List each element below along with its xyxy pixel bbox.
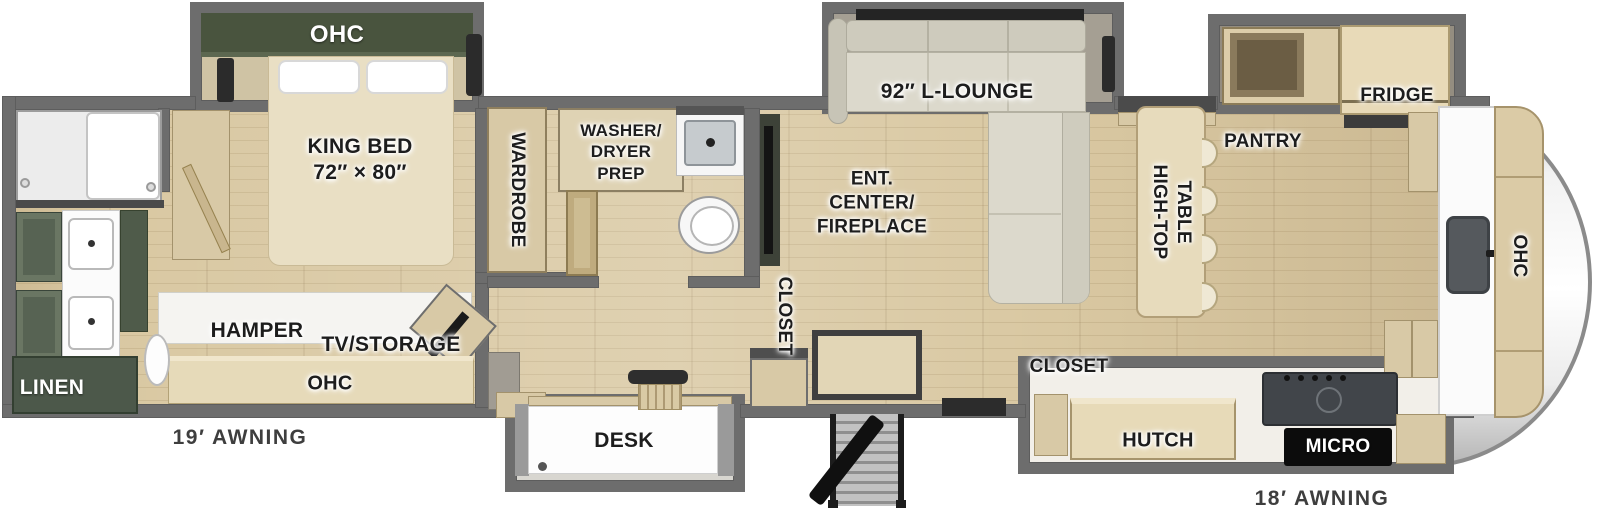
label-bedroom-ohc: OHC — [310, 20, 364, 50]
floorplan: OHC KING BED 72″ × 80″ WARDROBE WASHER/ … — [0, 0, 1600, 513]
medicine-cabinet — [16, 290, 62, 360]
label-awning-right: 18′ AWNING — [1255, 486, 1390, 512]
cooktop-knob — [1284, 375, 1290, 381]
label-awning-left: 19′ AWNING — [173, 425, 308, 451]
faucet — [88, 240, 95, 247]
pantry-shelf — [1230, 33, 1304, 97]
entry-landing — [812, 330, 922, 400]
bedroom-window-left — [217, 58, 234, 102]
sofa-chaise — [988, 112, 1090, 304]
wall-bath-bottom — [487, 276, 599, 288]
laundry-sink-shelf — [676, 106, 744, 115]
cooktop-knob — [1298, 375, 1304, 381]
kitchen-slide-cabinet — [1034, 394, 1068, 456]
lounge-window — [1102, 36, 1115, 92]
galley-sink — [1446, 216, 1490, 294]
bath-door-leaf — [566, 190, 598, 276]
kitchen-slide-cabinet — [1396, 414, 1446, 464]
cooktop-knob — [1340, 375, 1346, 381]
desk-chair-back — [628, 370, 688, 384]
label-pantry: PANTRY — [1224, 130, 1302, 154]
shower-drain — [20, 178, 30, 188]
desk-grommet — [538, 462, 547, 471]
shower-drain — [146, 182, 156, 192]
desk-counter-edge — [528, 396, 732, 406]
faucet — [706, 138, 715, 147]
label-micro: MICRO — [1306, 435, 1371, 459]
wall-bath-living — [744, 108, 760, 288]
closet-cabinet — [750, 358, 808, 408]
wall-bath-bottom — [688, 276, 760, 288]
pillow — [278, 60, 360, 94]
faucet — [88, 318, 95, 325]
sofa-armrest — [828, 18, 848, 124]
label-l-lounge: 92″ L-LOUNGE — [881, 79, 1034, 105]
step-foot — [896, 500, 906, 508]
label-washer-dryer: WASHER/ DRYER PREP — [580, 120, 661, 184]
label-wardrobe: WARDROBE — [505, 132, 529, 247]
fireplace-screen — [764, 126, 773, 254]
label-closet-mid: CLOSET — [772, 277, 796, 356]
label-hutch: HUTCH — [1122, 429, 1194, 454]
label-bedroom-ohc-lower: OHC — [307, 372, 352, 397]
desk-chair-seat — [638, 384, 682, 410]
cooktop-knob — [1326, 375, 1332, 381]
bedroom-window-right — [466, 34, 482, 96]
label-king-bed: KING BED 72″ × 80″ — [307, 134, 412, 187]
desk-side-cabinet — [718, 404, 734, 476]
label-desk: DESK — [594, 428, 654, 454]
label-ent-center: ENT. CENTER/ FIREPLACE — [817, 167, 927, 238]
bath-divider — [16, 200, 164, 208]
sofa-back — [846, 20, 1086, 52]
label-galley-ohc: OHC — [1507, 234, 1531, 277]
galley-lower-cabinet — [1384, 320, 1438, 378]
label-hamper: HAMPER — [211, 318, 304, 344]
desk-side-cabinet — [515, 404, 529, 476]
toilet-bowl — [690, 206, 734, 246]
label-linen: LINEN — [20, 375, 85, 401]
label-fridge: FRIDGE — [1360, 84, 1434, 108]
pillow — [366, 60, 448, 94]
entry-door-opening — [942, 398, 1006, 416]
bath-tall-cabinet — [120, 210, 148, 332]
cooktop-knob — [1312, 375, 1318, 381]
label-tv-storage: TV/STORAGE — [321, 332, 460, 358]
step-foot — [828, 500, 838, 508]
medicine-cabinet — [16, 212, 62, 282]
label-closet-kitchen: CLOSET — [1030, 355, 1109, 379]
bedroom-chair — [144, 334, 170, 386]
label-high-top: HIGH-TOP TABLE — [1147, 165, 1195, 260]
galley-upper-cabinet — [1408, 112, 1438, 192]
